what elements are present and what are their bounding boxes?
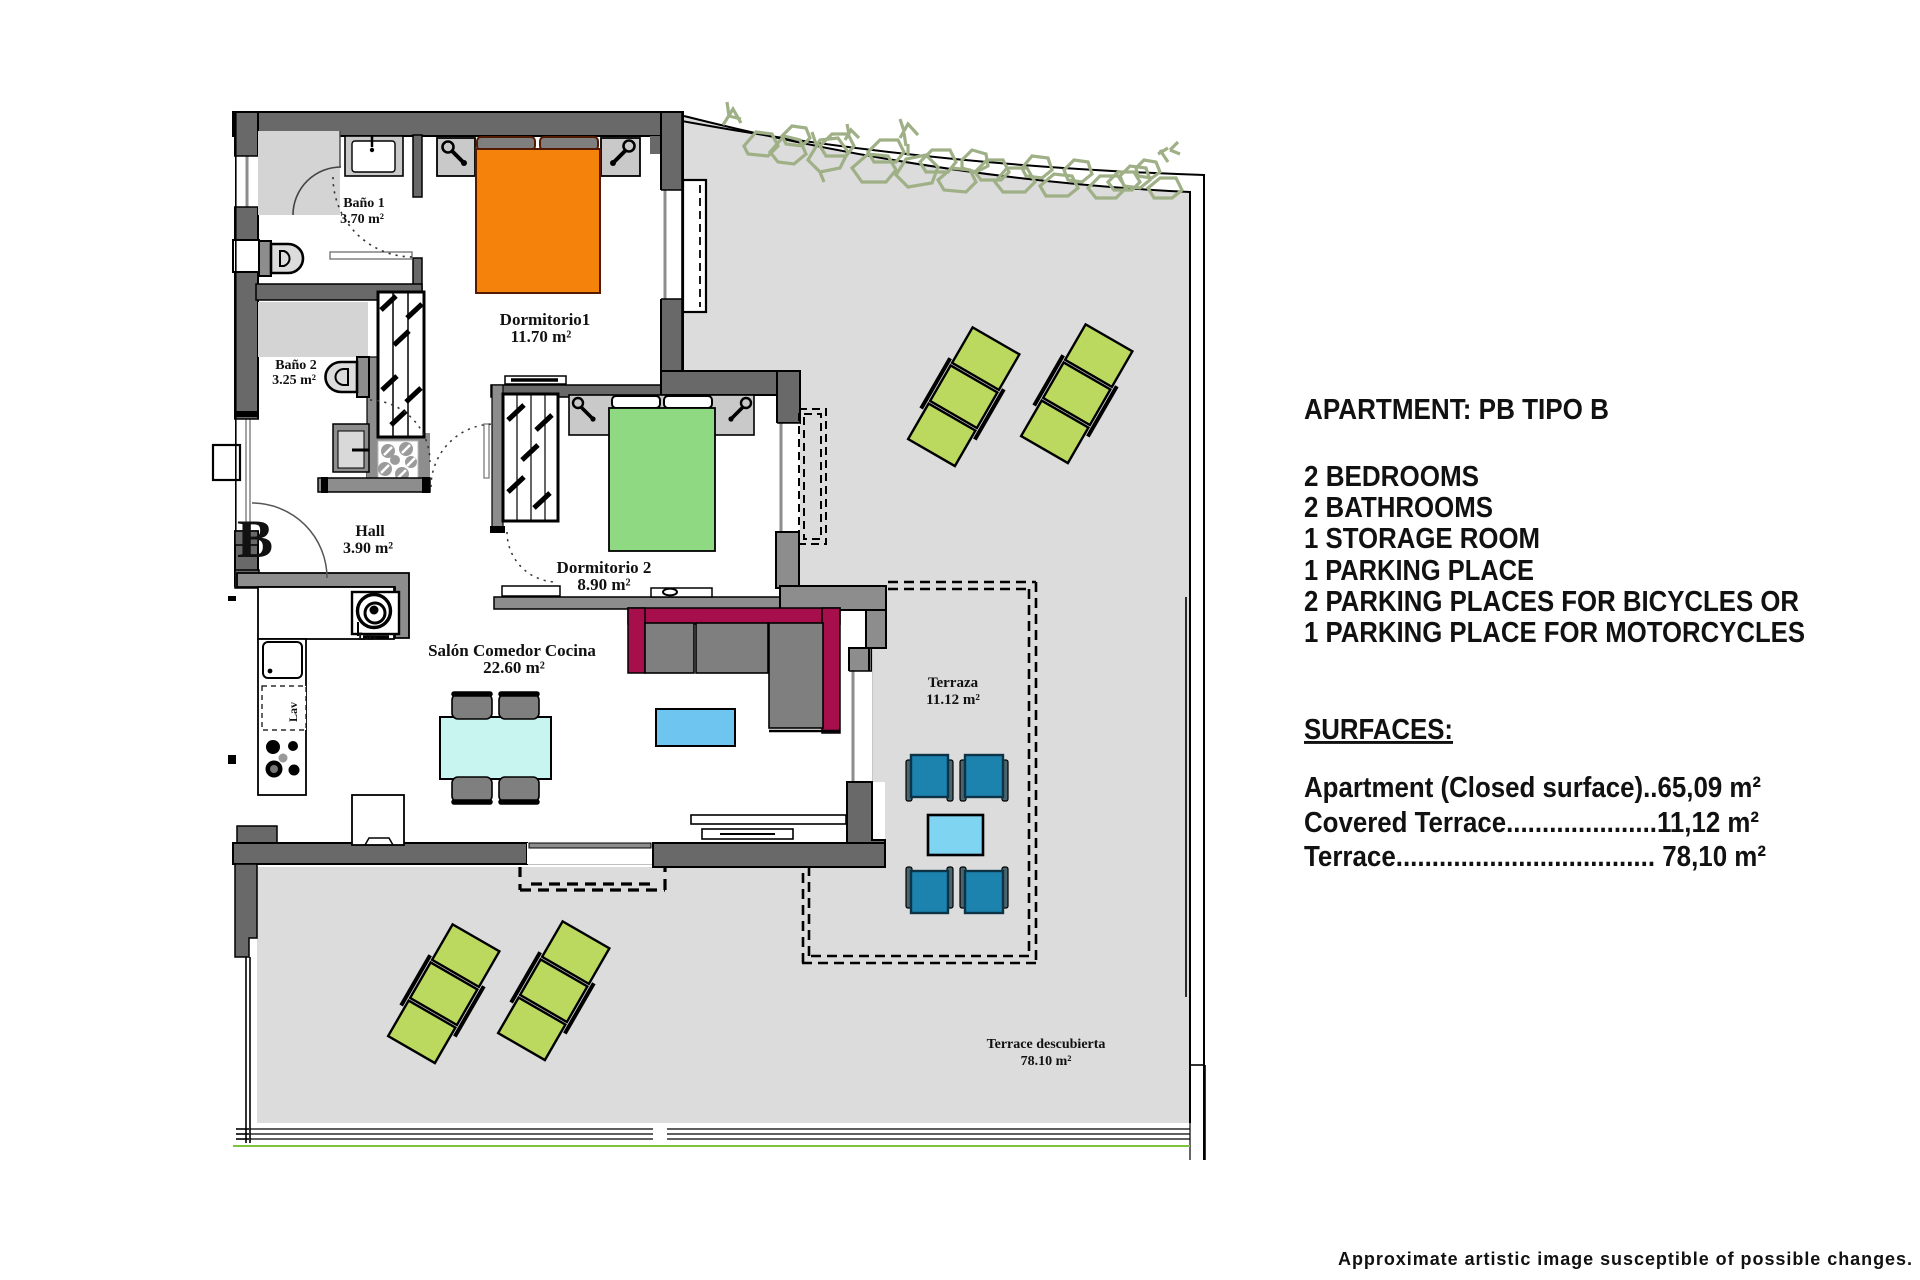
- svg-text:B: B: [237, 509, 273, 569]
- svg-text:3.90 m²: 3.90 m²: [343, 540, 393, 557]
- svg-text:Hall: Hall: [355, 523, 385, 540]
- svg-text:Lav: Lav: [358, 629, 378, 643]
- svg-text:1 PARKING PLACE FOR MOTORCYCLE: 1 PARKING PLACE FOR MOTORCYCLES: [1304, 617, 1805, 649]
- svg-text:APARTMENT: PB TIPO B: APARTMENT: PB TIPO B: [1304, 394, 1609, 426]
- svg-text:Approximate artistic image sus: Approximate artistic image susceptible o…: [1338, 1249, 1912, 1269]
- svg-text:Baño 1: Baño 1: [343, 196, 385, 211]
- svg-text:SURFACES:: SURFACES:: [1304, 714, 1453, 746]
- svg-text:78.10 m²: 78.10 m²: [1021, 1054, 1072, 1069]
- svg-text:Baño 2: Baño 2: [275, 358, 317, 373]
- svg-text:Lav: Lav: [286, 702, 300, 722]
- svg-text:1 PARKING PLACE: 1 PARKING PLACE: [1304, 555, 1534, 587]
- svg-text:Apartment (Closed surface)..65: Apartment (Closed surface)..65,09 m²: [1304, 772, 1761, 804]
- svg-text:22.60 m²: 22.60 m²: [483, 658, 545, 677]
- svg-text:Terrace.......................: Terrace.................................…: [1304, 841, 1766, 873]
- svg-text:Terrace descubierta: Terrace descubierta: [987, 1037, 1106, 1052]
- svg-text:8.90 m²: 8.90 m²: [577, 575, 630, 594]
- svg-text:11.70 m²: 11.70 m²: [511, 327, 572, 346]
- svg-text:Terraza: Terraza: [928, 675, 979, 691]
- svg-text:2 BATHROOMS: 2 BATHROOMS: [1304, 492, 1493, 524]
- svg-text:2 PARKING PLACES FOR BICYCLES: 2 PARKING PLACES FOR BICYCLES OR: [1304, 586, 1799, 618]
- svg-text:1 STORAGE ROOM: 1 STORAGE ROOM: [1304, 523, 1540, 555]
- svg-text:2 BEDROOMS: 2 BEDROOMS: [1304, 461, 1479, 493]
- svg-text:Covered Terrace...............: Covered Terrace.....................11,1…: [1304, 807, 1759, 839]
- svg-text:3.25 m²: 3.25 m²: [272, 373, 316, 388]
- svg-text:11.12 m²: 11.12 m²: [926, 692, 980, 708]
- svg-text:3.70 m²: 3.70 m²: [340, 212, 384, 227]
